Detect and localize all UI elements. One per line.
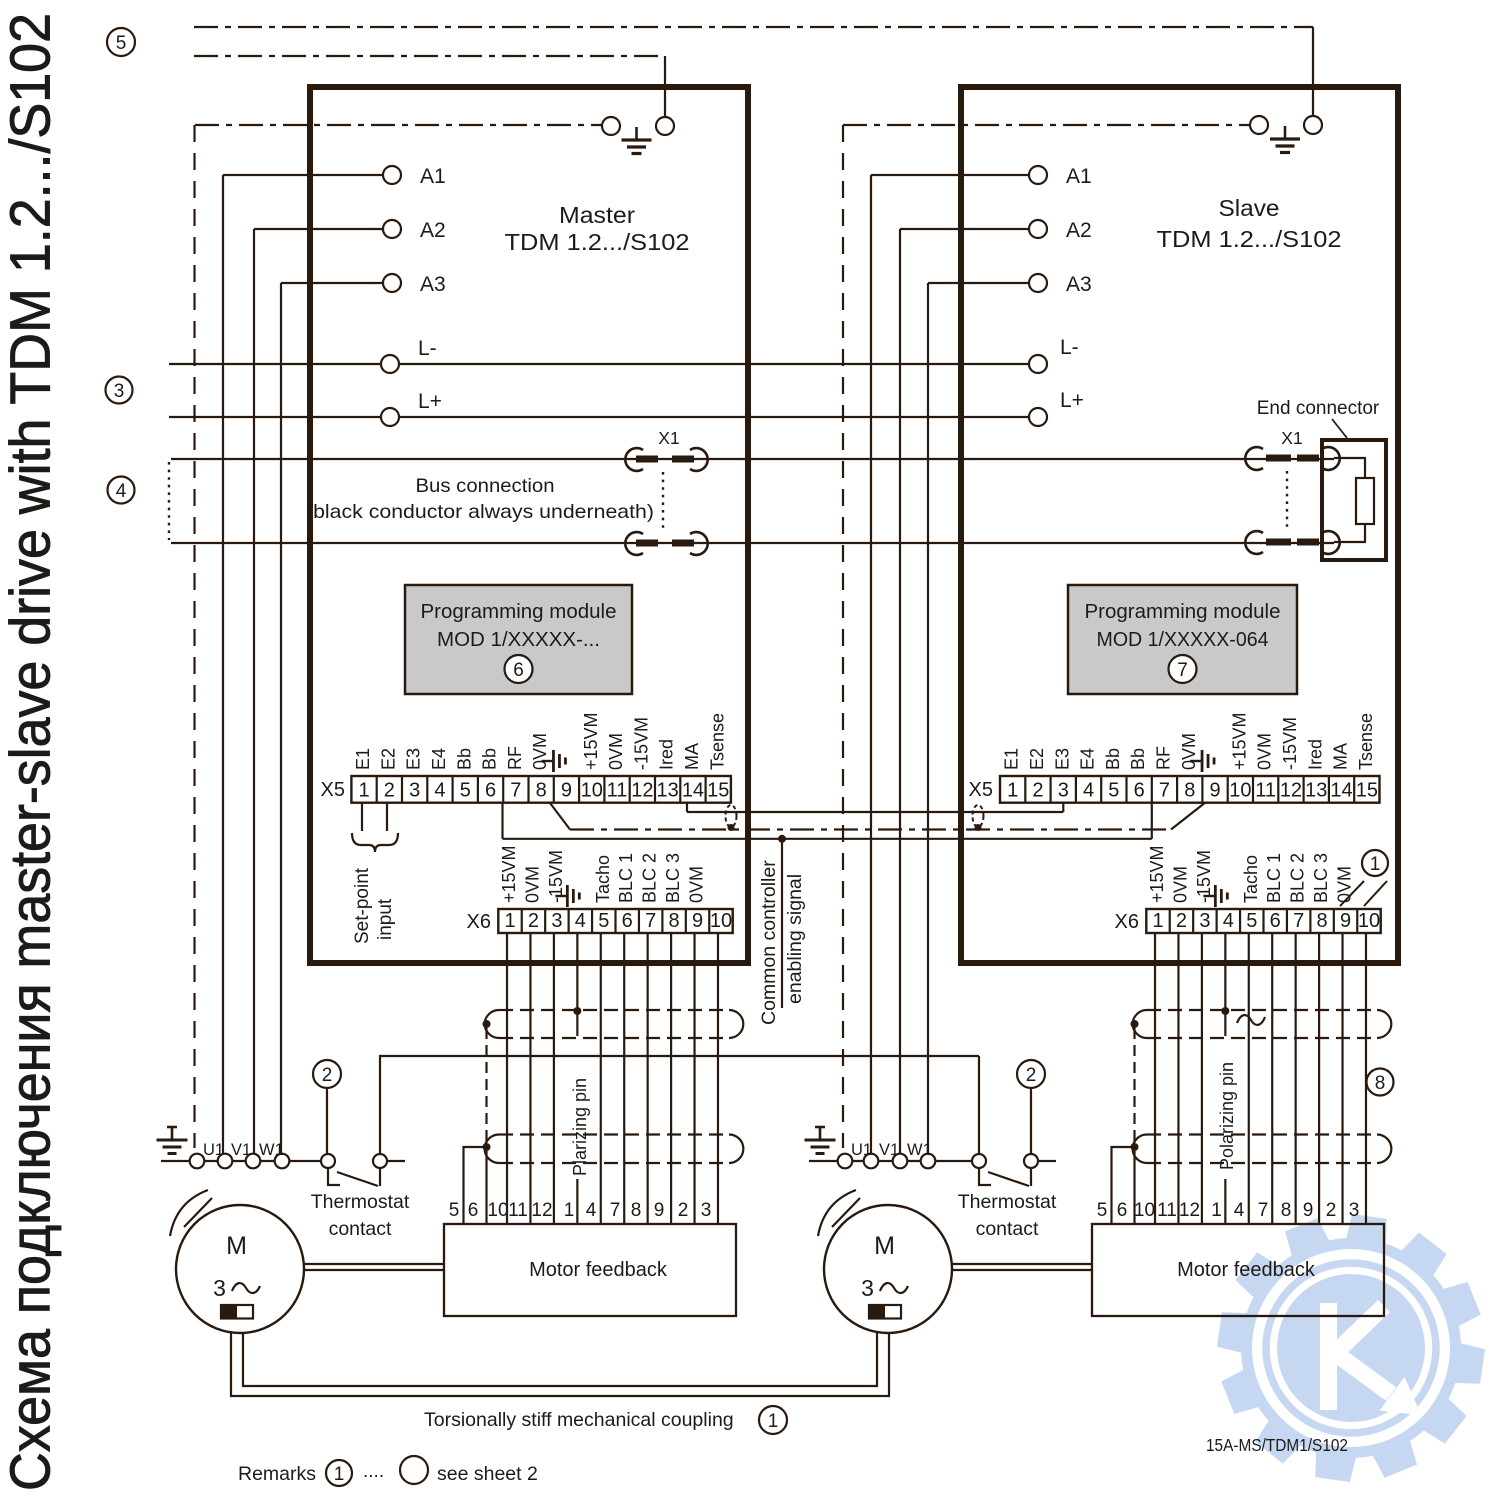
svg-text:Bb: Bb — [1103, 748, 1123, 770]
svg-text:3: 3 — [213, 1275, 226, 1301]
svg-text:3: 3 — [114, 381, 125, 402]
svg-text:E3: E3 — [1052, 748, 1072, 770]
svg-text:Ired: Ired — [1305, 739, 1325, 770]
svg-text:Bb: Bb — [480, 748, 500, 770]
svg-text:4: 4 — [575, 910, 586, 932]
svg-text:6: 6 — [1117, 1200, 1128, 1221]
svg-text:8: 8 — [669, 910, 680, 932]
svg-text:Programming module: Programming module — [421, 600, 617, 623]
svg-text:Bb: Bb — [1128, 748, 1148, 770]
svg-text:1: 1 — [1152, 910, 1163, 932]
svg-text:10: 10 — [1134, 1200, 1155, 1221]
svg-text:1: 1 — [564, 1200, 575, 1221]
svg-text:L-: L- — [1060, 336, 1079, 359]
svg-text:8: 8 — [1375, 1073, 1386, 1094]
svg-text:4: 4 — [586, 1200, 597, 1221]
svg-text:7: 7 — [1159, 780, 1170, 802]
svg-text:4: 4 — [1223, 910, 1234, 932]
svg-text:M: M — [874, 1232, 895, 1260]
svg-text:BLC 3: BLC 3 — [663, 853, 683, 903]
svg-text:E1: E1 — [353, 748, 373, 770]
svg-text:M: M — [226, 1232, 247, 1260]
svg-text:A1: A1 — [420, 165, 446, 188]
svg-text:9: 9 — [1303, 1200, 1314, 1221]
svg-text:contact: contact — [329, 1218, 392, 1240]
svg-text:+15VM: +15VM — [1229, 712, 1249, 770]
svg-text:X6: X6 — [467, 911, 491, 933]
svg-text:L+: L+ — [418, 390, 442, 413]
svg-text:6: 6 — [485, 780, 496, 802]
svg-text:E4: E4 — [429, 748, 449, 770]
svg-text:contact: contact — [976, 1218, 1039, 1240]
svg-text:4: 4 — [434, 780, 445, 802]
svg-text:2: 2 — [384, 780, 395, 802]
svg-text:4: 4 — [1083, 780, 1094, 802]
svg-text:Programming module: Programming module — [1085, 600, 1281, 623]
svg-text:Tacho: Tacho — [1241, 855, 1261, 903]
svg-text:W1: W1 — [907, 1141, 932, 1159]
svg-text:1: 1 — [1007, 780, 1018, 802]
svg-text:Plarizing pin: Plarizing pin — [570, 1078, 590, 1176]
svg-text:Common controller: Common controller — [758, 860, 780, 1025]
svg-text:10: 10 — [710, 910, 732, 932]
svg-text:3: 3 — [861, 1275, 874, 1301]
svg-text:6: 6 — [468, 1200, 479, 1221]
svg-text:BLC 1: BLC 1 — [1264, 853, 1284, 903]
svg-text:E2: E2 — [1027, 748, 1047, 770]
svg-text:A3: A3 — [1066, 273, 1092, 296]
svg-text:+15VM: +15VM — [581, 712, 601, 770]
svg-text:Thermostat: Thermostat — [311, 1191, 410, 1213]
svg-text:0VM: 0VM — [1335, 866, 1355, 903]
svg-text:U1: U1 — [203, 1141, 224, 1159]
svg-text:3: 3 — [409, 780, 420, 802]
svg-text:A3: A3 — [420, 273, 446, 296]
svg-text:7: 7 — [1177, 660, 1188, 681]
svg-text:Tsense: Tsense — [707, 713, 727, 770]
svg-text:9: 9 — [1209, 780, 1220, 802]
svg-text:X6: X6 — [1115, 911, 1139, 933]
svg-text:9: 9 — [561, 780, 572, 802]
svg-text:BLC 2: BLC 2 — [640, 853, 660, 903]
svg-text:1: 1 — [334, 1464, 345, 1485]
svg-text:5: 5 — [460, 780, 471, 802]
svg-text:MOD 1/XXXXX-064: MOD 1/XXXXX-064 — [1097, 628, 1269, 651]
svg-text:A1: A1 — [1066, 165, 1092, 188]
svg-text:8: 8 — [1281, 1200, 1292, 1221]
svg-text:Remarks: Remarks — [238, 1463, 316, 1485]
svg-text:5: 5 — [1108, 780, 1119, 802]
svg-text:End connector: End connector — [1257, 398, 1380, 419]
svg-text:W1: W1 — [259, 1141, 284, 1159]
svg-text:0VM: 0VM — [687, 866, 707, 903]
svg-text:L+: L+ — [1060, 389, 1084, 412]
svg-text:X5: X5 — [321, 779, 345, 801]
svg-text:2: 2 — [1032, 780, 1043, 802]
svg-text:Master: Master — [559, 202, 635, 228]
svg-text:Bb: Bb — [454, 748, 474, 770]
svg-text:Thermostat: Thermostat — [958, 1191, 1057, 1213]
svg-text:V1: V1 — [879, 1141, 899, 1159]
svg-text:9: 9 — [654, 1200, 665, 1221]
svg-text:15: 15 — [707, 780, 729, 802]
svg-text:10: 10 — [1358, 910, 1380, 932]
svg-text:6: 6 — [513, 660, 524, 681]
svg-text:0VM: 0VM — [1170, 866, 1190, 903]
svg-text:14: 14 — [1330, 780, 1352, 802]
svg-text:BLC 3: BLC 3 — [1311, 853, 1331, 903]
svg-text:15A-MS/TDM1/S102: 15A-MS/TDM1/S102 — [1206, 1435, 1348, 1455]
svg-text:U1: U1 — [851, 1141, 872, 1159]
svg-text:X1: X1 — [658, 428, 679, 448]
svg-text:Set-point: Set-point — [352, 867, 373, 944]
svg-text:3: 3 — [1199, 910, 1210, 932]
svg-text:11: 11 — [508, 1200, 528, 1221]
svg-text:1: 1 — [1211, 1200, 1222, 1221]
svg-text:A2: A2 — [1066, 219, 1092, 242]
svg-text:12: 12 — [1179, 1200, 1200, 1221]
svg-text:0VM: 0VM — [522, 866, 542, 903]
svg-text:L-: L- — [418, 337, 437, 360]
svg-text:-15VM: -15VM — [1280, 717, 1300, 770]
svg-text:3: 3 — [1349, 1200, 1360, 1221]
svg-text:Motor feedback: Motor feedback — [1177, 1259, 1316, 1281]
svg-text:RF: RF — [505, 746, 525, 770]
svg-text:5: 5 — [1097, 1200, 1108, 1221]
svg-text:10: 10 — [581, 780, 603, 802]
svg-text:3: 3 — [701, 1200, 712, 1221]
svg-text:11: 11 — [1255, 780, 1276, 802]
svg-text:2: 2 — [1026, 1065, 1037, 1086]
svg-text:5: 5 — [116, 33, 127, 54]
svg-text:5: 5 — [598, 910, 609, 932]
svg-text:+15VM: +15VM — [499, 845, 519, 903]
svg-text:2: 2 — [1176, 910, 1187, 932]
svg-text:5: 5 — [449, 1200, 460, 1221]
svg-text:8: 8 — [536, 780, 547, 802]
svg-text:0VM: 0VM — [606, 733, 626, 770]
svg-text:12: 12 — [531, 1200, 552, 1221]
svg-text:10: 10 — [487, 1200, 508, 1221]
svg-text:E3: E3 — [404, 748, 424, 770]
svg-text:-15VM: -15VM — [631, 717, 651, 770]
svg-text:Motor feedback: Motor feedback — [529, 1259, 668, 1281]
svg-text:5: 5 — [1246, 910, 1257, 932]
svg-text:2: 2 — [322, 1065, 333, 1086]
svg-text:7: 7 — [1258, 1200, 1269, 1221]
svg-text:7: 7 — [610, 1200, 621, 1221]
svg-text:0VM: 0VM — [1255, 733, 1275, 770]
svg-text:BLC 1: BLC 1 — [616, 853, 636, 903]
svg-text:12: 12 — [1280, 780, 1302, 802]
svg-text:7: 7 — [510, 780, 521, 802]
svg-text:see sheet 2: see sheet 2 — [437, 1463, 538, 1485]
svg-text:RF: RF — [1153, 746, 1173, 770]
svg-text:X5: X5 — [969, 779, 993, 801]
svg-text:8: 8 — [1317, 910, 1328, 932]
svg-text:15: 15 — [1356, 780, 1378, 802]
svg-text:4: 4 — [1234, 1200, 1245, 1221]
svg-text:....: .... — [363, 1461, 384, 1482]
svg-text:BLC 2: BLC 2 — [1288, 853, 1308, 903]
svg-text:8: 8 — [631, 1200, 642, 1221]
svg-text:2: 2 — [528, 910, 539, 932]
svg-text:TDM 1.2.../S102: TDM 1.2.../S102 — [1157, 226, 1342, 252]
svg-text:TDM 1.2.../S102: TDM 1.2.../S102 — [505, 229, 690, 255]
svg-text:3: 3 — [1058, 780, 1069, 802]
svg-text:MA: MA — [1331, 743, 1351, 770]
svg-text:7: 7 — [1293, 910, 1304, 932]
svg-text:2: 2 — [1326, 1200, 1337, 1221]
svg-text:1: 1 — [1370, 854, 1381, 875]
svg-text:Polarizing pin: Polarizing pin — [1217, 1062, 1237, 1170]
svg-text:1: 1 — [504, 910, 515, 932]
svg-text:MOD 1/XXXXX-...: MOD 1/XXXXX-... — [437, 628, 600, 651]
svg-text:Ired: Ired — [657, 739, 677, 770]
svg-text:1: 1 — [768, 1411, 779, 1432]
svg-text:3: 3 — [551, 910, 562, 932]
svg-text:(black conductor always undern: (black conductor always underneath) — [306, 501, 654, 523]
svg-text:Tsense: Tsense — [1356, 713, 1376, 770]
svg-text:10: 10 — [1229, 780, 1251, 802]
svg-text:0VM: 0VM — [1179, 733, 1199, 770]
svg-text:11: 11 — [1157, 1200, 1177, 1221]
svg-text:9: 9 — [692, 910, 703, 932]
svg-text:MA: MA — [682, 743, 702, 770]
svg-text:6: 6 — [1270, 910, 1281, 932]
svg-text:E2: E2 — [378, 748, 398, 770]
svg-text:2: 2 — [678, 1200, 689, 1221]
svg-text:11: 11 — [607, 780, 628, 802]
svg-text:+15VM: +15VM — [1147, 845, 1167, 903]
svg-text:0VM: 0VM — [530, 733, 550, 770]
svg-text:8: 8 — [1184, 780, 1195, 802]
svg-text:1: 1 — [358, 780, 369, 802]
svg-text:Bus connection: Bus connection — [416, 475, 555, 497]
svg-text:Slave: Slave — [1219, 195, 1280, 221]
svg-text:13: 13 — [657, 780, 679, 802]
svg-text:9: 9 — [1340, 910, 1351, 932]
svg-text:enabling signal: enabling signal — [784, 874, 806, 1004]
svg-text:A2: A2 — [420, 219, 446, 242]
svg-text:6: 6 — [1134, 780, 1145, 802]
svg-text:6: 6 — [622, 910, 633, 932]
svg-text:X1: X1 — [1281, 428, 1302, 448]
svg-text:13: 13 — [1305, 780, 1327, 802]
svg-text:Torsionally stiff mechanical c: Torsionally stiff mechanical coupling — [424, 1409, 734, 1431]
svg-text:V1: V1 — [231, 1141, 251, 1159]
svg-text:14: 14 — [682, 780, 704, 802]
svg-text:4: 4 — [116, 481, 127, 502]
svg-text:Tacho: Tacho — [593, 855, 613, 903]
svg-text:input: input — [375, 898, 396, 940]
svg-text:Схема подключения master-slave: Схема подключения master-slave drive wit… — [0, 13, 63, 1491]
svg-text:12: 12 — [631, 780, 653, 802]
svg-text:E4: E4 — [1078, 748, 1098, 770]
svg-text:E1: E1 — [1002, 748, 1022, 770]
svg-text:7: 7 — [645, 910, 656, 932]
